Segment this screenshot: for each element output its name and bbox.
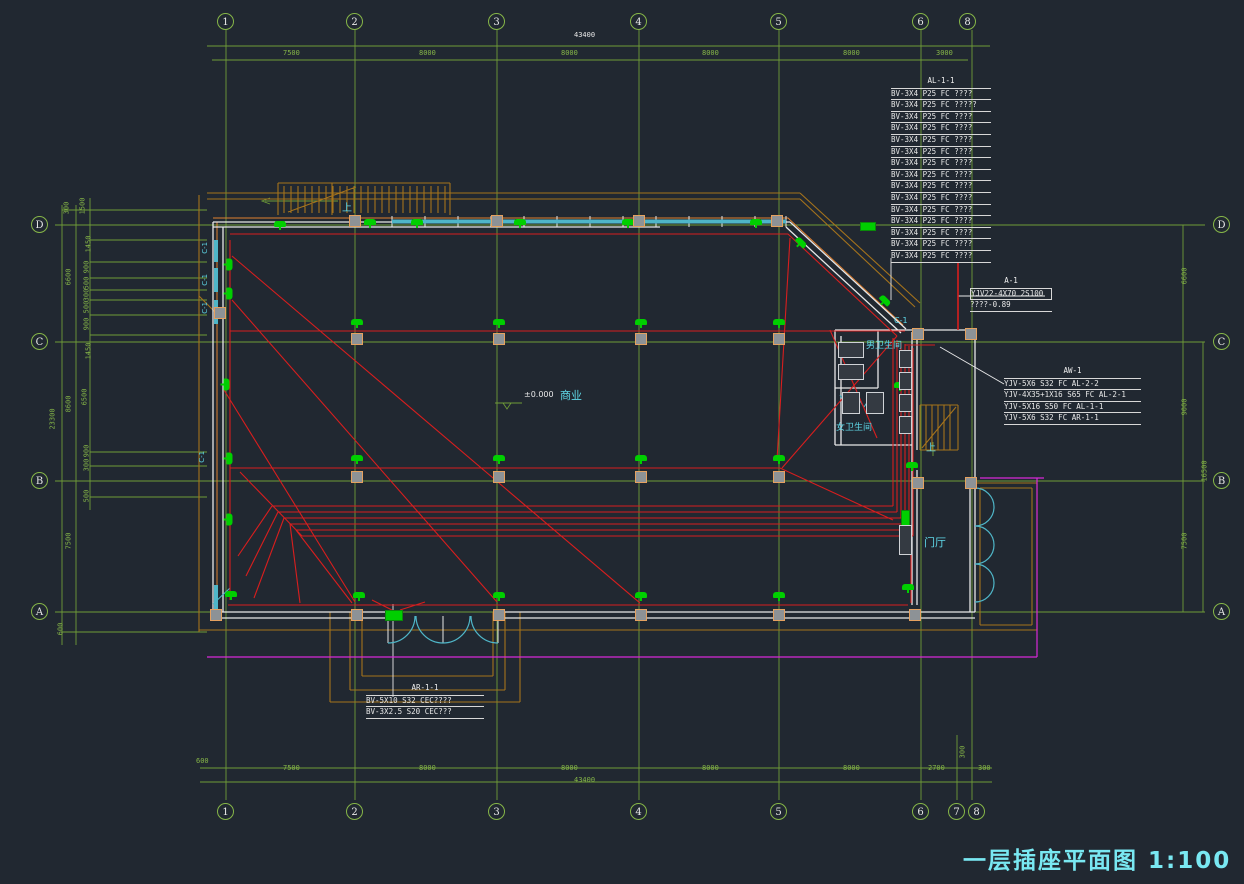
annotation-line: ????-0.89 — [970, 300, 1052, 312]
text-label: 上 — [342, 203, 352, 214]
dimension-label: 8000 — [561, 49, 578, 57]
dimension-label: 8000 — [561, 764, 578, 772]
sanitary-fixture — [838, 342, 864, 358]
dimension-label: 300 — [82, 459, 90, 472]
dimension-label: 7500 — [1180, 533, 1188, 550]
column-symbol — [773, 333, 785, 345]
dimension-label: 3000 — [936, 49, 953, 57]
sanitary-fixture — [899, 350, 912, 368]
text-label: 门厅 — [924, 537, 946, 549]
annotation-A-1: A-1YJV22-4X70 2S100????-0.89 — [970, 276, 1052, 312]
text-label: C-1 — [894, 317, 908, 326]
annotation-AR-1-1: AR-1-1BV-5X10 S32 CEC????BV-3X2.5 S20 CE… — [366, 683, 484, 719]
dimension-label: 8000 — [843, 49, 860, 57]
dimension-label: 6600 — [1180, 268, 1188, 285]
column-symbol — [493, 333, 505, 345]
annotation-line: BV-3X4 P25 FC ???? — [891, 216, 991, 228]
column-symbol — [351, 471, 363, 483]
annotation-line: BV-3X4 P25 FC ???? — [891, 135, 991, 147]
column-symbol — [351, 609, 363, 621]
annotation-AL-1-1: AL-1-1BV-3X4 P25 FC ????BV-3X4 P25 FC ??… — [891, 76, 991, 263]
column-symbol — [635, 471, 647, 483]
dimension-label: 6500 — [80, 389, 88, 406]
annotation-line: BV-3X4 P25 FC ????? — [891, 100, 991, 112]
dimension-label: 1450 — [84, 236, 92, 253]
socket-symbol — [773, 592, 785, 601]
column-symbol — [493, 609, 505, 621]
axis-bubble-B: B — [31, 472, 48, 489]
axis-bubble-1: 1 — [217, 803, 234, 820]
axis-bubble-6: 6 — [912, 803, 929, 820]
socket-symbol — [773, 455, 785, 464]
sanitary-fixture — [899, 525, 912, 555]
annotation-line: BV-5X10 S32 CEC???? — [366, 696, 484, 708]
annotation-line: BV-3X4 P25 FC ???? — [891, 181, 991, 193]
dimension-label: 8000 — [843, 764, 860, 772]
axis-bubble-3: 3 — [488, 803, 505, 820]
distribution-panel — [860, 222, 876, 231]
dimension-label: 500 — [82, 301, 90, 314]
socket-symbol — [514, 219, 526, 228]
annotation-line: BV-3X4 P25 FC ???? — [891, 123, 991, 135]
axis-bubble-C: C — [1213, 333, 1230, 350]
socket-symbol — [353, 592, 365, 601]
text-label: 男卫生间 — [866, 342, 902, 352]
dimension-label: 1450 — [84, 343, 92, 360]
column-symbol — [351, 333, 363, 345]
column-symbol — [912, 477, 924, 489]
annotation-line: BV-3X4 P25 FC ???? — [891, 239, 991, 251]
dimension-label: 300 — [82, 289, 90, 302]
sanitary-fixture — [838, 364, 864, 380]
column-symbol — [635, 609, 647, 621]
dimension-label: 8000 — [419, 49, 436, 57]
annotation-line: YJV-5X6 S32 FC AL-2-2 — [1004, 379, 1141, 391]
annotation-line: BV-3X4 P25 FC ???? — [891, 170, 991, 182]
distribution-panel — [385, 610, 403, 621]
axis-bubble-1: 1 — [217, 13, 234, 30]
sanitary-fixture — [842, 392, 860, 414]
socket-symbol — [635, 319, 647, 328]
socket-symbol — [224, 288, 233, 300]
socket-symbol — [221, 379, 230, 391]
dimension-label: 600 — [56, 623, 64, 636]
sanitary-fixture — [899, 416, 912, 434]
dimension-label: 300 — [978, 764, 991, 772]
socket-symbol — [902, 584, 914, 593]
dimension-label: 43400 — [574, 31, 595, 39]
text-label: 女卫生间 — [836, 424, 872, 434]
axis-bubble-A: A — [31, 603, 48, 620]
axis-bubble-3: 3 — [488, 13, 505, 30]
column-symbol — [909, 609, 921, 621]
annotation-title: AL-1-1 — [891, 76, 991, 89]
axis-bubble-8: 8 — [968, 803, 985, 820]
text-label: C-1 — [202, 302, 210, 314]
dimension-label: 6600 — [64, 269, 72, 286]
window-lines — [213, 222, 994, 644]
wall-accent-lines — [213, 218, 903, 612]
axis-bubble-C: C — [31, 333, 48, 350]
dimension-label: 500 — [82, 277, 90, 290]
text-label: C-1 — [202, 242, 210, 254]
annotation-AW-1: AW-1YJV-5X6 S32 FC AL-2-2YJV-4X35+1X16 S… — [1004, 366, 1141, 425]
dimension-label: 600 — [196, 757, 209, 765]
column-symbol — [491, 215, 503, 227]
axis-bubble-6: 6 — [912, 13, 929, 30]
text-label: 上 — [926, 443, 936, 454]
column-symbol — [773, 609, 785, 621]
axis-bubble-4: 4 — [630, 803, 647, 820]
socket-symbol — [906, 462, 918, 471]
dimension-label: 300 — [958, 746, 966, 759]
socket-symbol — [493, 455, 505, 464]
socket-symbol — [411, 219, 423, 228]
drawing-title: 一层插座平面图 1:100 — [963, 841, 1231, 877]
dimension-label: 7500 — [64, 533, 72, 550]
annotation-line: YJV22-4X70 2S100 — [970, 289, 1052, 301]
column-symbol — [349, 215, 361, 227]
wiring-lines — [224, 234, 958, 610]
axis-bubble-B: B — [1213, 472, 1230, 489]
annotation-title: AW-1 — [1004, 366, 1141, 379]
socket-symbol — [773, 319, 785, 328]
axis-bubble-A: A — [1213, 603, 1230, 620]
annotation-title: AR-1-1 — [366, 683, 484, 696]
dimension-label: 8000 — [419, 764, 436, 772]
dimension-label: 300 — [62, 202, 70, 215]
axis-bubble-2: 2 — [346, 803, 363, 820]
column-symbol — [912, 328, 924, 340]
socket-symbol — [224, 259, 233, 271]
socket-symbol — [225, 591, 237, 600]
wall-lines — [213, 216, 1045, 697]
socket-symbol — [274, 221, 286, 230]
sanitary-fixture — [899, 372, 912, 390]
column-symbol — [965, 477, 977, 489]
axis-bubble-5: 5 — [770, 13, 787, 30]
annotation-line: YJV-5X16 S50 FC AL-1-1 — [1004, 402, 1141, 414]
axis-bubble-4: 4 — [630, 13, 647, 30]
dimension-label: 16500 — [1201, 460, 1209, 481]
annotation-line: YJV-4X35+1X16 S65 FC AL-2-1 — [1004, 390, 1141, 402]
dimension-label: 500 — [82, 490, 90, 503]
drawing-linework — [0, 0, 1244, 884]
socket-symbol — [351, 319, 363, 328]
dimension-label: 900 — [82, 318, 90, 331]
dimension-label: 23300 — [49, 408, 57, 429]
axis-bubble-2: 2 — [346, 13, 363, 30]
sanitary-fixture — [866, 392, 884, 414]
dimension-label: 9000 — [1180, 399, 1188, 416]
column-symbol — [210, 609, 222, 621]
axis-bubble-5: 5 — [770, 803, 787, 820]
socket-symbol — [635, 592, 647, 601]
text-label: C-1 — [199, 451, 207, 463]
socket-symbol — [224, 514, 233, 526]
column-symbol — [773, 471, 785, 483]
text-label: ±0.000 — [524, 391, 554, 400]
column-symbol — [965, 328, 977, 340]
axis-bubble-7: 7 — [948, 803, 965, 820]
column-symbol — [633, 215, 645, 227]
column-symbol — [214, 307, 226, 319]
annotation-line: BV-3X4 P25 FC ???? — [891, 112, 991, 124]
socket-symbol — [224, 453, 233, 465]
axis-bubble-8: 8 — [959, 13, 976, 30]
socket-symbol — [750, 219, 762, 228]
annotation-line: YJV-5X6 S32 FC AR-1-1 — [1004, 413, 1141, 425]
annotation-line: BV-3X4 P25 FC ???? — [891, 89, 991, 101]
dimension-label: 8000 — [702, 49, 719, 57]
socket-symbol — [635, 455, 647, 464]
socket-symbol — [351, 455, 363, 464]
sanitary-fixture — [899, 394, 912, 412]
dimension-label: 7500 — [283, 764, 300, 772]
text-label: C-1 — [202, 274, 210, 286]
socket-symbol — [493, 319, 505, 328]
dimension-label: 43400 — [574, 776, 595, 784]
axis-bubble-D: D — [1213, 216, 1230, 233]
column-symbol — [635, 333, 647, 345]
dimension-label: 8000 — [702, 764, 719, 772]
annotation-line: BV-3X4 P25 FC ???? — [891, 228, 991, 240]
column-symbol — [493, 471, 505, 483]
dimension-label: 7500 — [283, 49, 300, 57]
socket-symbol — [364, 219, 376, 228]
annotation-line: BV-3X4 P25 FC ???? — [891, 251, 991, 263]
annotation-line: BV-3X4 P25 FC ???? — [891, 193, 991, 205]
annotation-line: BV-3X2.5 S20 CEC??? — [366, 707, 484, 719]
dimension-label: 900 — [82, 261, 90, 274]
dimension-label: 1500 — [78, 198, 86, 215]
dimension-label: 8600 — [64, 396, 72, 413]
dimension-label: 900 — [82, 445, 90, 458]
column-symbol — [771, 215, 783, 227]
annotation-line: BV-3X4 P25 FC ???? — [891, 158, 991, 170]
floorplan-canvas: 一层插座平面图 1:100 123456812345678DCBADCBA434… — [0, 0, 1244, 884]
annotation-title: A-1 — [970, 276, 1052, 289]
annotation-line: BV-3X4 P25 FC ???? — [891, 147, 991, 159]
dimension-label: 2700 — [928, 764, 945, 772]
socket-symbol — [493, 592, 505, 601]
annotation-line: BV-3X4 P25 FC ???? — [891, 205, 991, 217]
axis-bubble-D: D — [31, 216, 48, 233]
text-label: 商业 — [560, 390, 582, 402]
